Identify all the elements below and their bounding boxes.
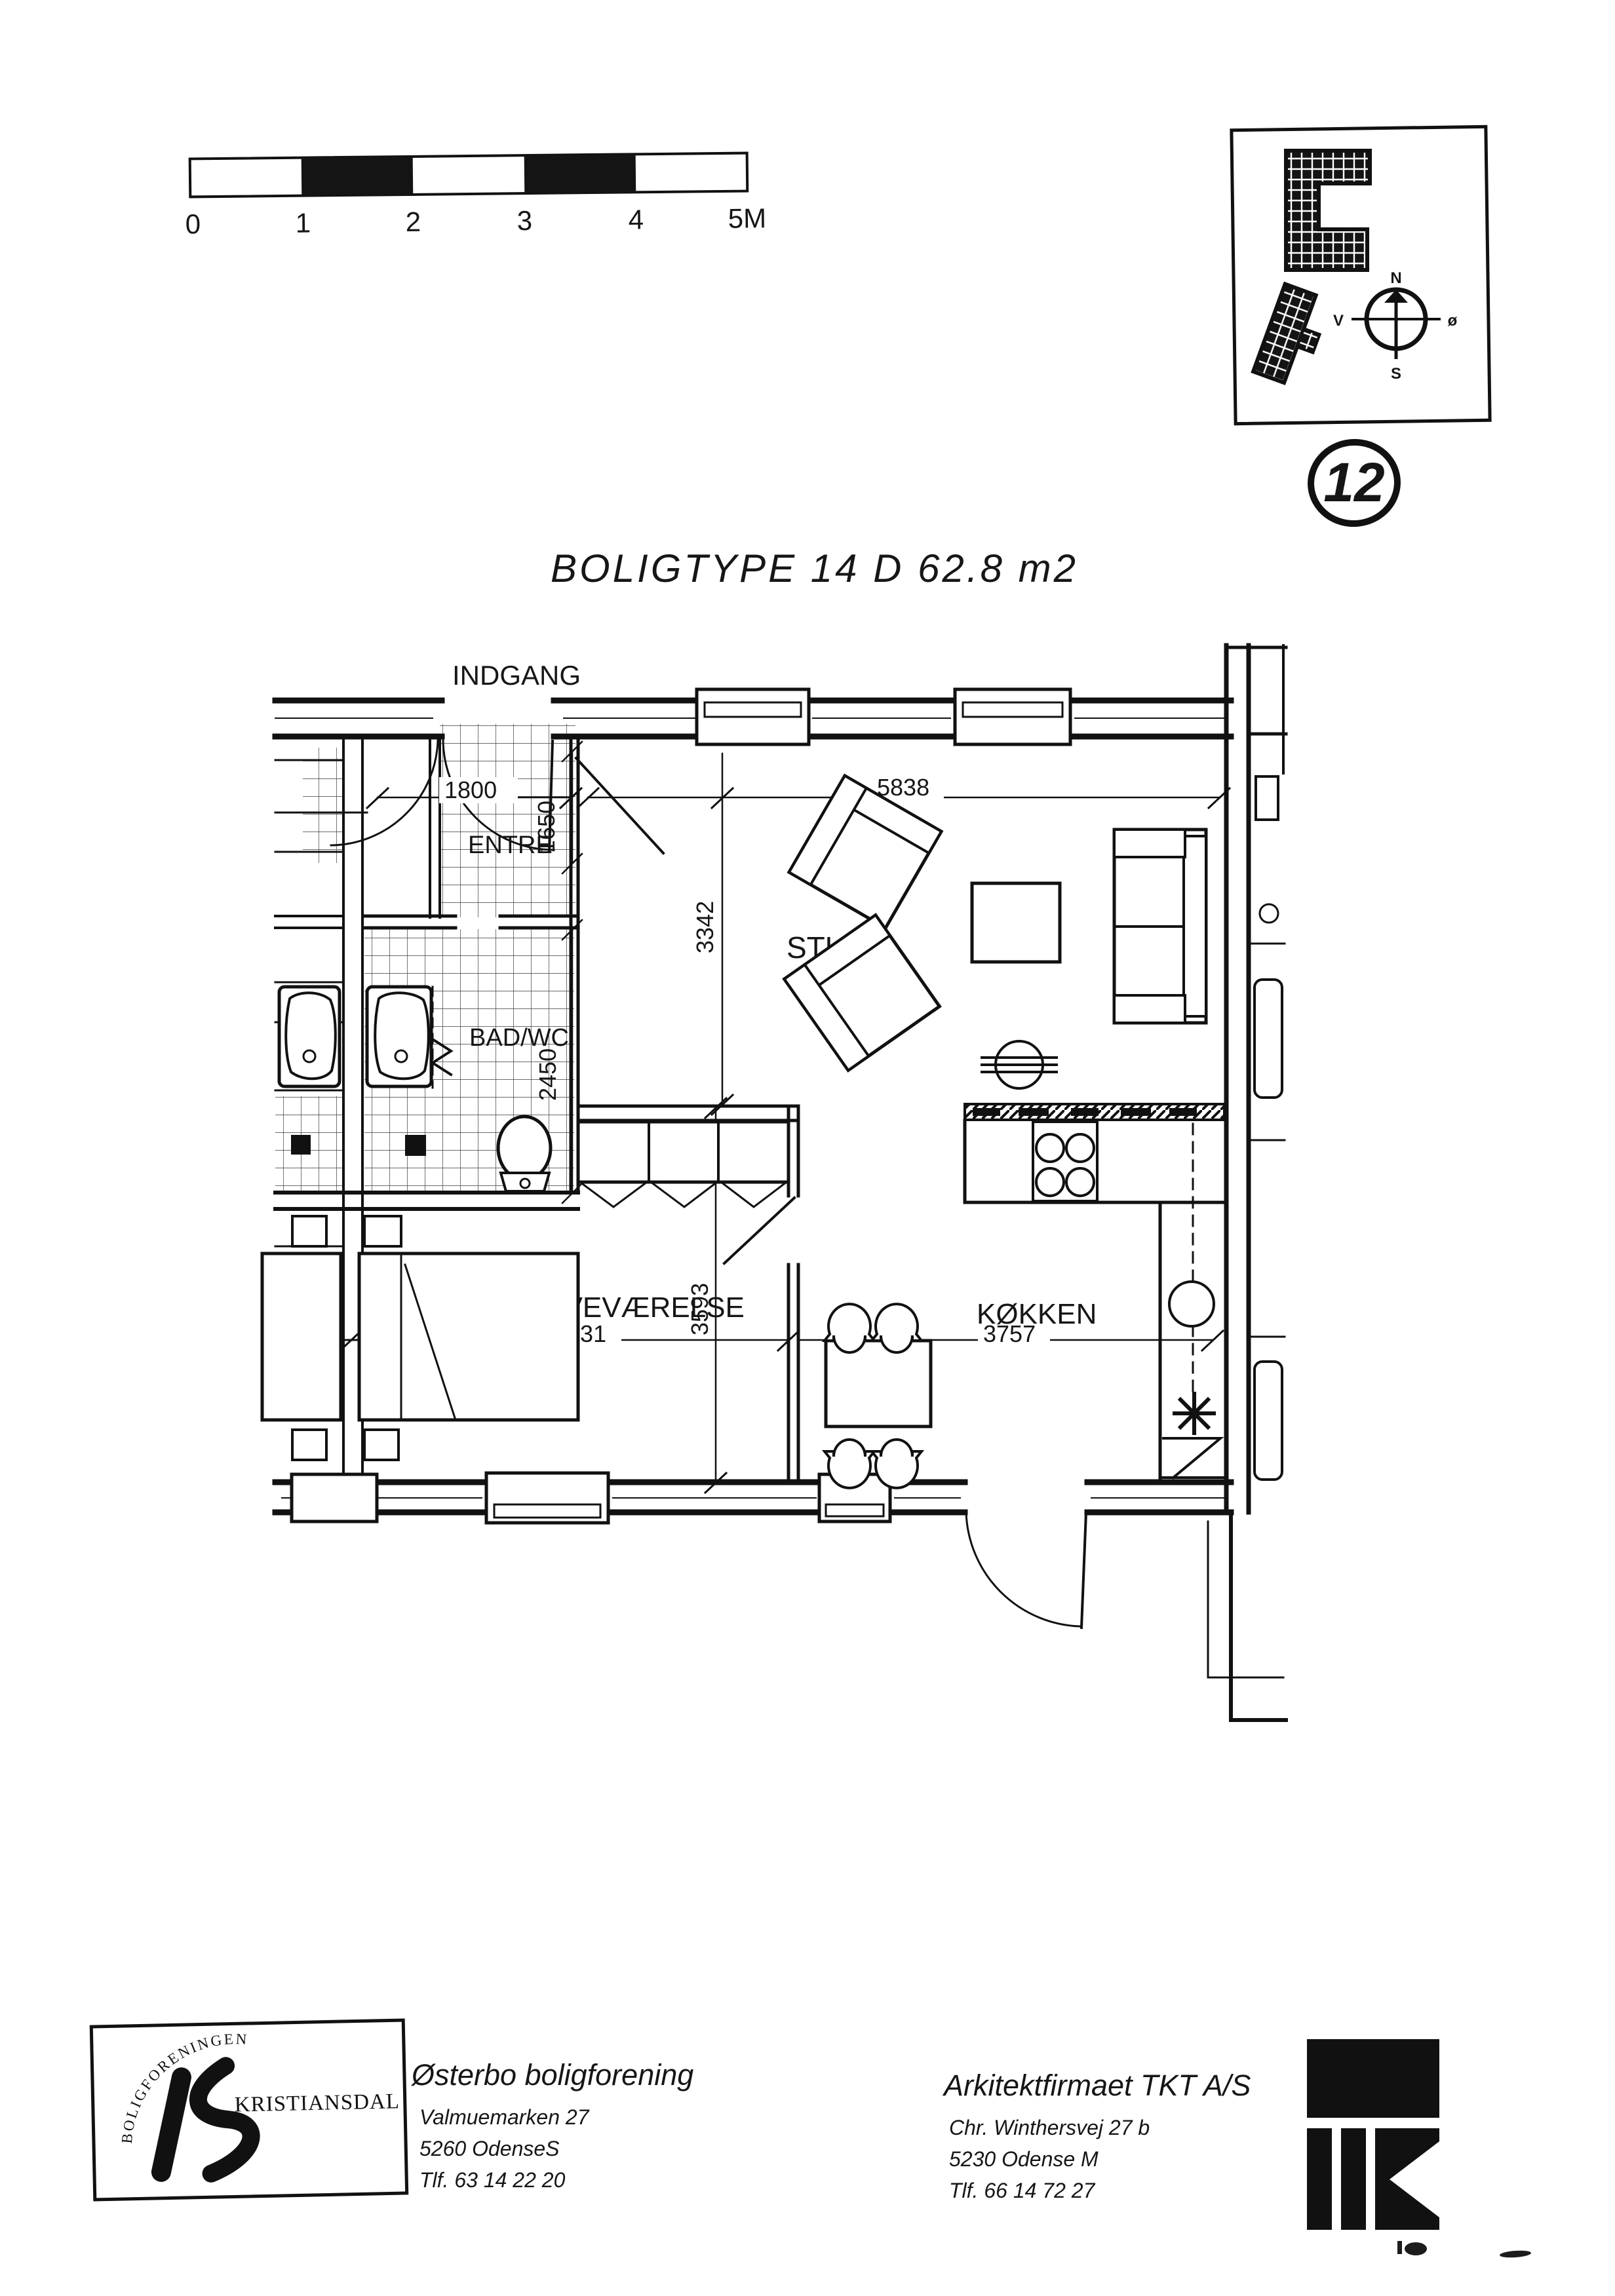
kitchen-hatched-wall: [965, 1104, 1224, 1120]
balcony-door-leaf: [1081, 1512, 1086, 1628]
architect-address-block: Arkitektfirmaet TKT A/S Chr. Winthersvej…: [942, 2069, 1251, 2202]
hall-door-leaf: [576, 758, 663, 853]
dim-bath-depth: 2450: [534, 1048, 561, 1101]
coffee-table: [972, 883, 1060, 962]
scale-tick-4: 4: [628, 204, 644, 235]
association-address-block: Østerbo boligforening Valmuemarken 27 52…: [410, 2058, 693, 2192]
kitchen-sink: [1169, 1282, 1214, 1326]
asterisk-symbol: [1175, 1394, 1214, 1433]
compass-west-label: V: [1333, 312, 1344, 330]
entre-bath-wall: [275, 916, 578, 928]
balcony-door-swing: [966, 1512, 1080, 1626]
scale-tick-5m: 5M: [728, 202, 766, 234]
architect-name: Arkitektfirmaet TKT A/S: [942, 2069, 1251, 2102]
neighbor-window-bottom: [292, 1474, 377, 1521]
floor-drain: [405, 1135, 426, 1156]
scale-bar: 0 1 2 3 4 5M: [185, 153, 767, 239]
association-logo-box: BOLIGFORENINGEN KRISTIANSDAL: [91, 2020, 406, 2200]
sheet-number: 12: [1323, 451, 1384, 513]
wardrobes: [578, 1122, 788, 1207]
dim-living-width: 5838: [877, 774, 929, 801]
hall-top-wall: [578, 1106, 798, 1120]
scale-tick-2: 2: [405, 206, 421, 237]
association-address1: Valmuemarken 27: [419, 2105, 590, 2129]
living-room-window-top-2: [955, 689, 1070, 744]
bed: [359, 1253, 578, 1420]
nightstand-top: [364, 1216, 401, 1246]
refrigerator-symbol: [1160, 1394, 1224, 1478]
room-label-kitchen: KØKKEN: [977, 1298, 1097, 1330]
nightstand-bottom: [364, 1430, 399, 1460]
compass-north-label: N: [1390, 269, 1401, 287]
scale-segment-1-2: [302, 157, 414, 196]
bedroom-window-bottom: [486, 1473, 608, 1523]
wall-heater: [982, 1041, 1057, 1088]
architect-address2: 5230 Odense M: [949, 2147, 1099, 2171]
floor-plan-drawing: 0 1 2 3 4 5M N S V ø: [0, 0, 1615, 2296]
compass-east-label: ø: [1448, 312, 1458, 330]
room-label-bath: BAD/WC: [469, 1024, 569, 1052]
bottom-exterior-wall: [275, 1482, 1231, 1512]
bedroom-door-leaf: [724, 1198, 794, 1263]
scale-tick-0: 0: [185, 208, 201, 239]
toilet: [498, 1117, 551, 1191]
association-logo-name: KRISTIANSDAL: [234, 2090, 400, 2116]
architect-phone: Tlf. 66 14 72 27: [949, 2179, 1096, 2202]
tkt-logo-icon: [1307, 2039, 1439, 2230]
scale-segment-3-4: [524, 154, 636, 193]
bath-bedroom-wall: [275, 1193, 578, 1209]
stove: [1033, 1122, 1097, 1201]
neighbor-bed: [262, 1216, 341, 1460]
entrance-label: INDGANG: [452, 660, 581, 691]
terrace-outline: [1208, 1512, 1286, 1720]
association-phone: Tlf. 63 14 22 20: [419, 2168, 566, 2192]
right-exterior-wall: [1226, 645, 1286, 1512]
drawing-sheet: 0 1 2 3 4 5M N S V ø: [0, 0, 1615, 2296]
site-plan-inset: N S V ø: [1232, 126, 1490, 423]
compass-south-label: S: [1391, 365, 1401, 383]
sofa: [1114, 830, 1206, 1023]
architect-address1: Chr. Winthersvej 27 b: [949, 2116, 1150, 2139]
scan-smudges: [1397, 2241, 1531, 2259]
dining-table: [826, 1341, 931, 1426]
association-address2: 5260 OdenseS: [419, 2137, 560, 2160]
dim-living-depth: 3342: [691, 901, 718, 953]
living-room-window-top-1: [697, 689, 809, 744]
room-label-entre: ENTRE: [468, 832, 553, 859]
drawing-title: BOLIGTYPE 14 D 62.8 m2: [551, 546, 1078, 590]
scale-tick-1: 1: [295, 208, 311, 239]
floor-plan: INDGANG: [262, 645, 1286, 1720]
association-name: Østerbo boligforening: [410, 2058, 693, 2092]
dim-entre-width: 1800: [444, 776, 497, 803]
sheet-number-badge: 12: [1307, 438, 1401, 527]
scale-tick-3: 3: [516, 205, 532, 236]
